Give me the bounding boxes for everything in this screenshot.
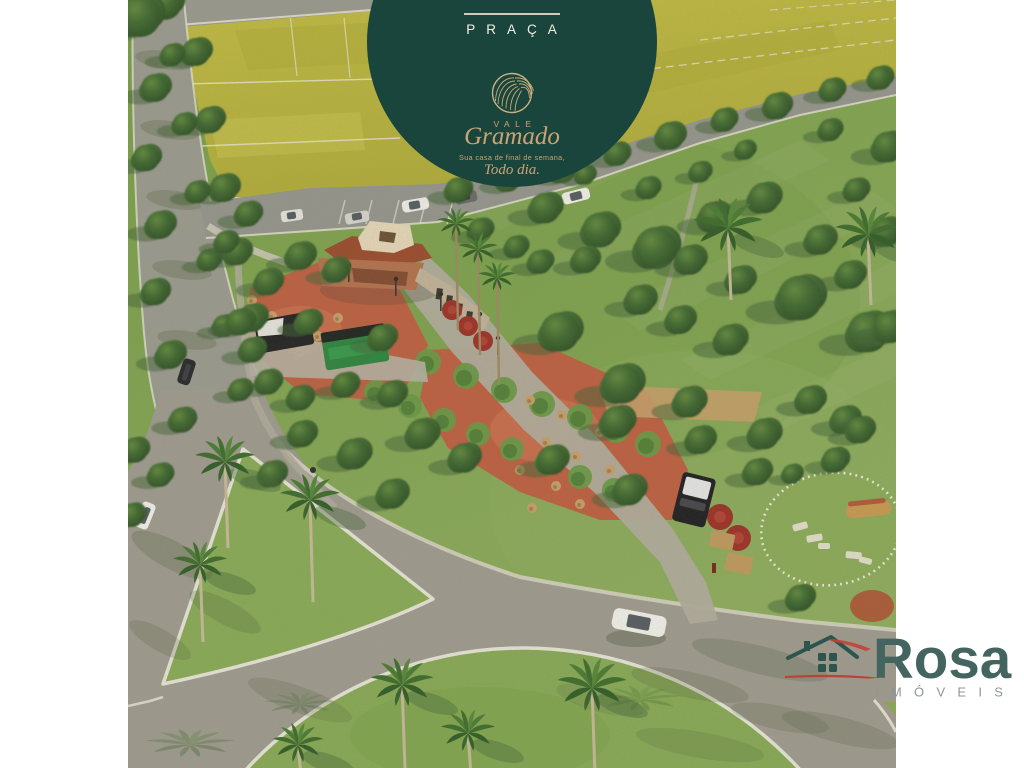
svg-text:Rosa: Rosa bbox=[873, 627, 1012, 690]
svg-text:IMÓVEIS: IMÓVEIS bbox=[875, 685, 1015, 700]
